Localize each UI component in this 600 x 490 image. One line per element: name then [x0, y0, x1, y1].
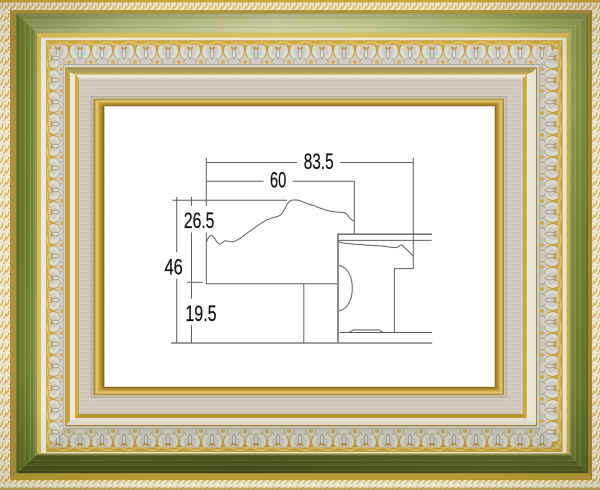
- svg-text:19.5: 19.5: [185, 301, 216, 326]
- svg-text:60: 60: [270, 168, 286, 193]
- svg-text:26.5: 26.5: [184, 208, 215, 233]
- svg-text:46: 46: [165, 255, 183, 280]
- svg-text:83.5: 83.5: [304, 149, 334, 174]
